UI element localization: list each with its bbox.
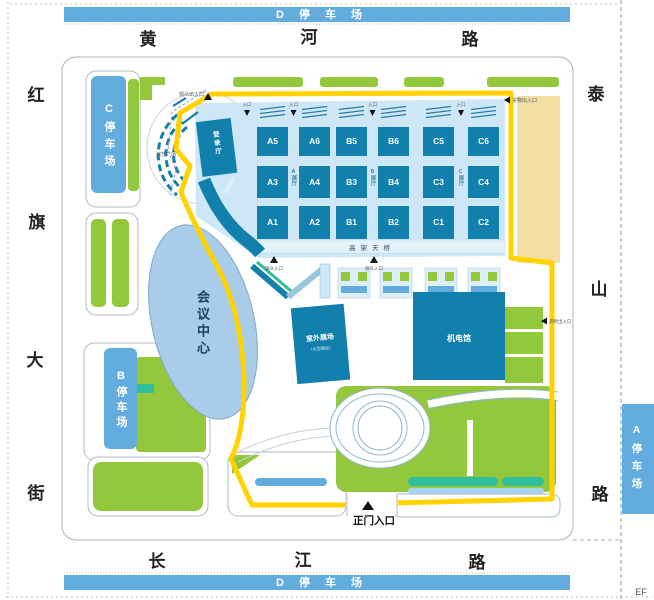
performance-plaza-label: 演艺广场 bbox=[156, 151, 176, 158]
hall-label: A6 bbox=[309, 136, 320, 146]
road-north-char: 河 bbox=[301, 28, 318, 47]
hall-label: A4 bbox=[309, 177, 320, 187]
road-south-char: 江 bbox=[295, 551, 312, 570]
west-green-strips bbox=[86, 213, 138, 315]
wing-b-label: B展厅 bbox=[369, 169, 375, 186]
outdoor-exhibition: 室外展场 （大型展品） bbox=[291, 304, 350, 384]
hall-label: B3 bbox=[346, 177, 357, 187]
roundabout-outer bbox=[330, 388, 430, 468]
east-entrance-label: 货物出入口 bbox=[549, 318, 572, 325]
east-service-strip bbox=[517, 96, 560, 263]
southwest-green bbox=[88, 457, 208, 516]
hall-label: B6 bbox=[388, 136, 399, 146]
nw-entrance-label: 观众出入口 bbox=[179, 91, 204, 98]
skybridge-label: 高架天桥 bbox=[349, 243, 395, 252]
b-parking-label: B停车场 bbox=[115, 370, 126, 431]
ne-entrance: 货物出入口 bbox=[504, 97, 537, 105]
hall-label: C2 bbox=[478, 217, 489, 227]
hall-label: B4 bbox=[388, 177, 399, 187]
d-parking-bottom-label: D 停 车 场 bbox=[276, 575, 368, 589]
a-parking-label: A停车场 bbox=[631, 424, 642, 496]
road-east-char: 山 bbox=[591, 280, 608, 299]
ne-entrance-label: 货物出入口 bbox=[512, 97, 537, 104]
hall-label: A3 bbox=[267, 177, 278, 187]
wing-c-label: C展厅 bbox=[457, 169, 463, 186]
hall-label: C1 bbox=[433, 217, 444, 227]
hall-label: C5 bbox=[433, 136, 444, 146]
site-map-canvas: D 停 车 场 D 停 车 场 黄 河 路 长 江 路 红 旗 大 街 泰 山 … bbox=[0, 0, 654, 600]
road-north-char: 黄 bbox=[140, 29, 157, 49]
road-west-char: 街 bbox=[27, 483, 45, 503]
hall-label: B5 bbox=[346, 136, 357, 146]
hall-label: A5 bbox=[267, 136, 278, 146]
road-north-char: 路 bbox=[462, 29, 480, 49]
road-east-char: 泰 bbox=[588, 84, 606, 104]
hall-label: C4 bbox=[478, 177, 489, 187]
road-west-char: 红 bbox=[28, 85, 45, 105]
road-west-char: 大 bbox=[27, 350, 44, 370]
c-parking-label: C停车场 bbox=[103, 103, 114, 172]
electro-hall-label: 机电馆 bbox=[447, 333, 471, 343]
conference-center-label: 会议中心 bbox=[196, 290, 209, 358]
hall-label: A2 bbox=[309, 217, 320, 227]
electro-hall: 机电馆 bbox=[413, 292, 505, 380]
east-green-strips bbox=[505, 307, 543, 383]
main-entrance: 正门入口 bbox=[346, 494, 398, 527]
d-parking-top-label: D 停 车 场 bbox=[276, 7, 368, 21]
wing-a-label: A展厅 bbox=[290, 169, 296, 186]
corner-label: EF bbox=[635, 587, 647, 597]
exhibition-center-map: D 停 车 场 D 停 车 场 黄 河 路 长 江 路 红 旗 大 街 泰 山 … bbox=[0, 0, 654, 600]
road-south-char: 路 bbox=[469, 552, 487, 572]
hall-label: A1 bbox=[267, 217, 278, 227]
road-south-char: 长 bbox=[149, 551, 167, 571]
hall-label: B1 bbox=[346, 217, 357, 227]
hall-label: C6 bbox=[478, 136, 489, 146]
road-west-char: 旗 bbox=[29, 212, 46, 232]
main-entrance-label: 正门入口 bbox=[353, 514, 395, 527]
hall-label: B2 bbox=[388, 217, 399, 227]
hall-label: C3 bbox=[433, 177, 444, 187]
road-east-char: 路 bbox=[592, 484, 610, 504]
